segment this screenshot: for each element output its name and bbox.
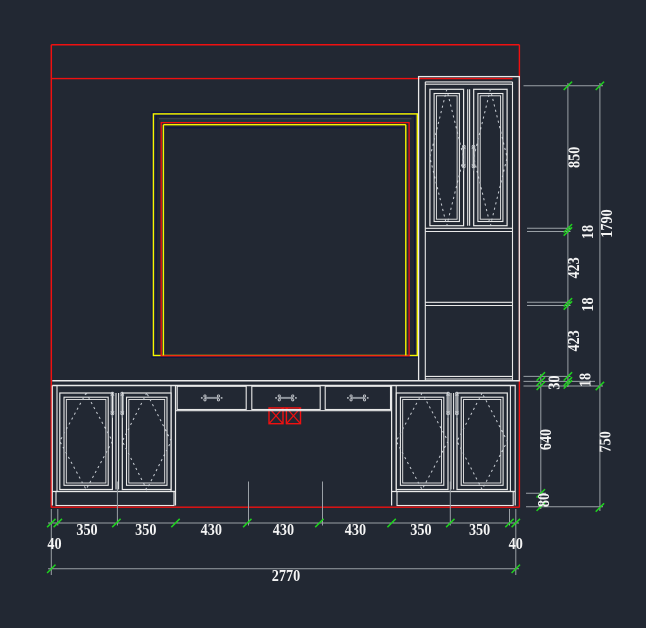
svg-text:350: 350	[76, 521, 97, 539]
svg-text:350: 350	[135, 521, 156, 539]
svg-text:1790: 1790	[598, 209, 616, 238]
svg-text:80: 80	[535, 493, 553, 507]
svg-text:2770: 2770	[272, 567, 301, 585]
svg-text:423: 423	[565, 257, 583, 278]
svg-text:640: 640	[537, 429, 555, 450]
svg-text:350: 350	[410, 521, 431, 539]
svg-text:423: 423	[565, 330, 583, 351]
svg-text:18: 18	[579, 225, 597, 239]
svg-text:40: 40	[47, 535, 61, 553]
svg-text:18: 18	[576, 373, 594, 387]
svg-text:750: 750	[596, 431, 614, 452]
svg-text:430: 430	[345, 521, 366, 539]
svg-text:850: 850	[565, 147, 583, 168]
svg-text:350: 350	[469, 521, 490, 539]
svg-text:30: 30	[546, 375, 564, 389]
svg-text:18: 18	[579, 297, 597, 311]
svg-text:430: 430	[201, 521, 222, 539]
svg-text:40: 40	[509, 535, 523, 553]
svg-text:430: 430	[273, 521, 294, 539]
